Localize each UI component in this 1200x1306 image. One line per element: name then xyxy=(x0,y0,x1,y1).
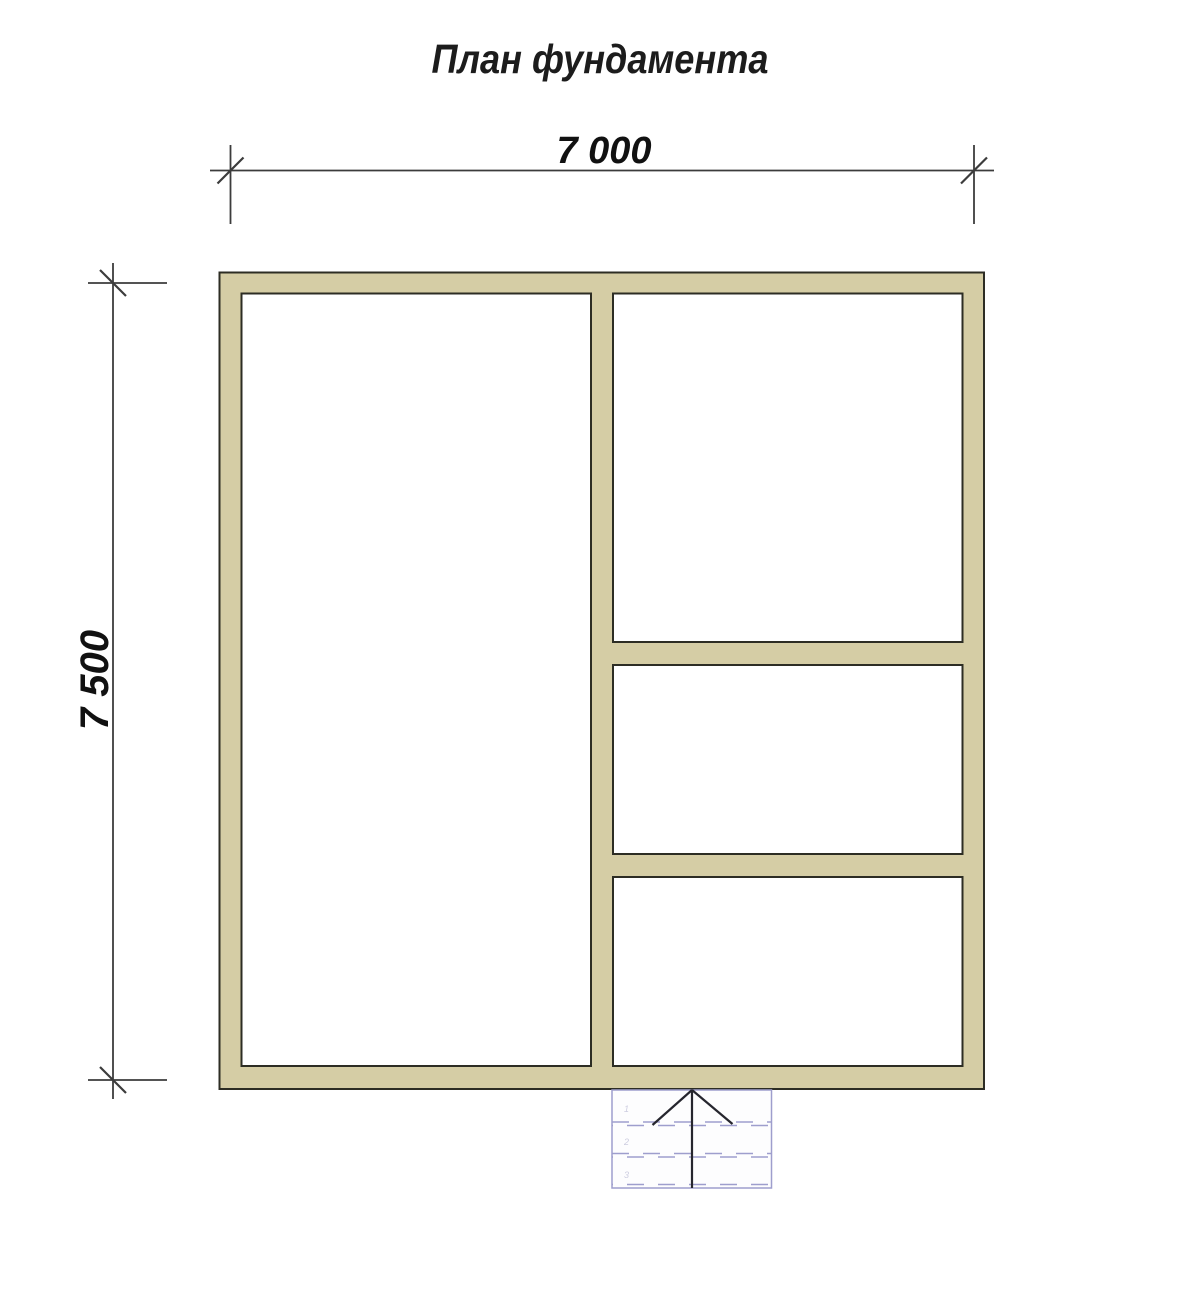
svg-text:7 000: 7 000 xyxy=(556,130,651,172)
svg-text:1: 1 xyxy=(624,1104,629,1114)
svg-text:2: 2 xyxy=(623,1137,629,1147)
svg-text:План фундамента: План фундамента xyxy=(432,36,769,82)
svg-text:7 500: 7 500 xyxy=(73,630,117,730)
svg-text:3: 3 xyxy=(624,1170,629,1180)
